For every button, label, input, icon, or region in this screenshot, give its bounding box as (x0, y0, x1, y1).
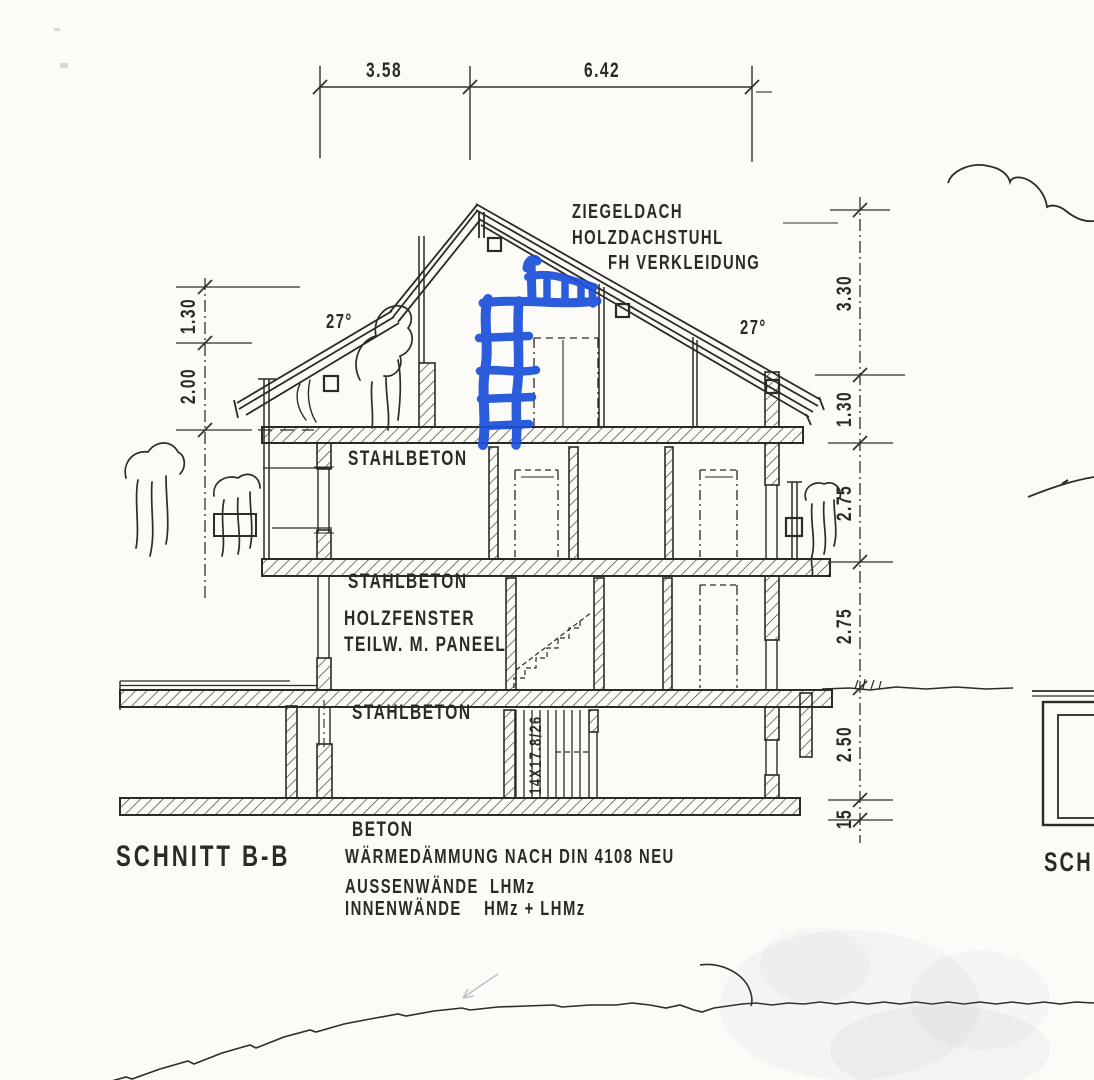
dim-right-1: 3.30 (834, 275, 856, 311)
floor-slabs (120, 427, 832, 815)
roof-angle-right: 27° (740, 318, 767, 339)
ground-floor-slab (120, 690, 832, 707)
ladder-rung (480, 370, 536, 371)
ladder-rung (481, 397, 532, 399)
dim-left-1: 1.30 (178, 298, 200, 334)
adjacent-section-title: SCHN (1044, 848, 1094, 876)
material-label-holzfenster: HOLZFENSTER (344, 608, 475, 630)
ladder-annotation (479, 259, 597, 445)
material-label-stahlbeton-2: STAHLBETON (348, 571, 468, 593)
bush-curve (1028, 477, 1094, 497)
section-title: SCHNITT B-B (116, 841, 290, 873)
dim-right-3: 2.75 (834, 485, 856, 521)
ladder-rung (483, 424, 529, 426)
base-slab (120, 798, 800, 815)
note-waermedaemmung: WÄRMEDÄMMUNG NACH DIN 4108 NEU (345, 847, 675, 868)
pencil-smudges (54, 28, 1050, 1080)
roof-label-ziegeldach: ZIEGELDACH (572, 202, 683, 223)
dim-top-2: 6.42 (584, 60, 620, 82)
roof-angle-left: 27° (326, 312, 353, 333)
faint-pencil-arrow (463, 974, 498, 998)
ladder-rung (479, 336, 529, 338)
adjacent-section-fragment (1032, 691, 1094, 825)
material-label-stahlbeton-1: STAHLBETON (348, 448, 468, 470)
dim-top-1: 3.58 (366, 60, 402, 82)
material-label-stahlbeton-3: STAHLBETON (352, 702, 472, 724)
dim-right-2: 1.30 (834, 391, 856, 427)
note-innenwaende: INNENWÄNDE HMz + LHMz (345, 899, 586, 920)
dashed-door-openings (515, 470, 737, 688)
roof-label-holzdachstuhl: HOLZDACHSTUHL (572, 228, 724, 249)
dim-right-5: 2.50 (834, 726, 856, 762)
note-aussenwaende: AUSSENWÄNDE LHMz (345, 877, 535, 898)
dim-left-2: 2.00 (178, 368, 200, 404)
attic-floor-slab (262, 427, 803, 443)
stair-dimension-label: 14X17.8/26 (527, 715, 545, 794)
dim-right-6: 15 (834, 809, 856, 829)
dim-right-4: 2.75 (834, 608, 856, 644)
scanned-architectural-drawing: 3.58 6.42 ZIEGELDACH HOLZDACHSTUHL FH VE… (0, 0, 1094, 1080)
roof-outline (234, 204, 824, 425)
material-label-paneel: TEILW. M. PANEEL (344, 634, 506, 656)
cloud-sketch (948, 165, 1094, 221)
material-label-beton: BETON (352, 819, 414, 841)
roof-label-fh-verkleidung: FH VERKLEIDUNG (608, 253, 760, 274)
background-sketches (948, 165, 1094, 497)
